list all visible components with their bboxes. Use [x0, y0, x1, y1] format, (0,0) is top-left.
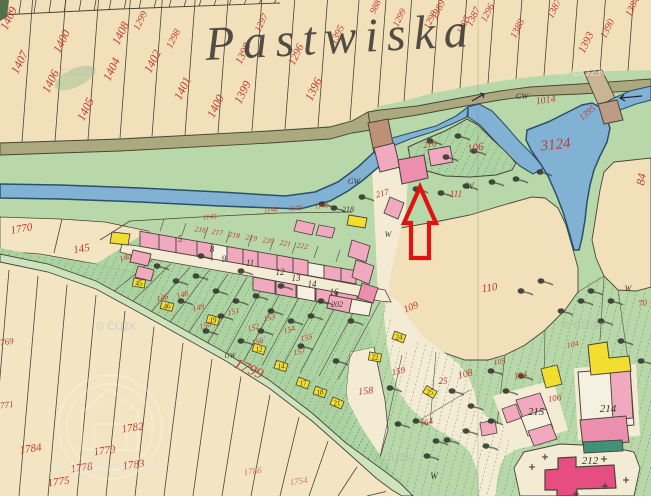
svg-text:25: 25 [439, 376, 449, 386]
svg-text:1145: 1145 [203, 212, 218, 221]
svg-text:218: 218 [228, 230, 241, 241]
svg-text:© ČÚZK: © ČÚZK [96, 320, 138, 333]
svg-text:© ČÚZK: © ČÚZK [558, 64, 607, 79]
svg-text:217: 217 [211, 227, 224, 238]
svg-text:© ČÚZK ARCHIVNÍ MAPY: © ČÚZK ARCHIVNÍ MAPY [24, 461, 166, 476]
svg-text:222: 222 [296, 241, 309, 252]
svg-text:8: 8 [210, 244, 215, 254]
svg-text:5: 5 [178, 234, 183, 244]
svg-text:16: 16 [330, 287, 340, 297]
svg-text:216: 216 [194, 224, 207, 235]
svg-text:GW: GW [348, 177, 362, 186]
svg-text:111: 111 [450, 189, 462, 199]
svg-text:13: 13 [292, 273, 302, 283]
svg-text:9: 9 [222, 254, 227, 264]
svg-text:21: 21 [334, 400, 342, 408]
svg-text:220: 220 [262, 235, 275, 246]
svg-text:84: 84 [633, 172, 649, 186]
svg-text:17: 17 [300, 380, 308, 388]
svg-text:25: 25 [427, 389, 435, 397]
svg-text:12: 12 [276, 267, 286, 277]
svg-text:1140: 1140 [315, 201, 330, 210]
svg-text:3124: 3124 [539, 135, 572, 154]
svg-text:45: 45 [136, 280, 144, 288]
svg-text:© ČÚZK: © ČÚZK [562, 319, 604, 332]
svg-text:158: 158 [358, 385, 374, 398]
svg-text:GW: GW [516, 92, 530, 101]
svg-text:216: 216 [422, 138, 437, 150]
svg-text:110: 110 [481, 281, 499, 295]
svg-text:12: 12 [256, 346, 264, 354]
svg-text:212: 212 [582, 455, 599, 467]
svg-text:14: 14 [278, 363, 286, 371]
svg-text:215: 215 [528, 406, 545, 418]
svg-text:1148: 1148 [264, 205, 279, 214]
svg-text:1146: 1146 [289, 203, 304, 212]
svg-text:218: 218 [342, 205, 354, 214]
svg-text:11: 11 [246, 258, 254, 268]
svg-text:202: 202 [331, 300, 343, 309]
svg-text:19: 19 [210, 317, 218, 325]
svg-text:24: 24 [396, 334, 404, 342]
svg-text:GW: GW [225, 352, 237, 360]
svg-text:219: 219 [245, 232, 258, 243]
svg-text:© ČÚZK: © ČÚZK [60, 65, 98, 78]
svg-text:221: 221 [279, 238, 291, 248]
svg-text:14: 14 [308, 279, 318, 289]
svg-text:© ČÚZK: © ČÚZK [372, 451, 414, 464]
svg-text:46: 46 [164, 303, 172, 311]
svg-text:214: 214 [600, 403, 617, 415]
svg-text:18: 18 [317, 389, 325, 397]
svg-text:22: 22 [372, 354, 380, 362]
